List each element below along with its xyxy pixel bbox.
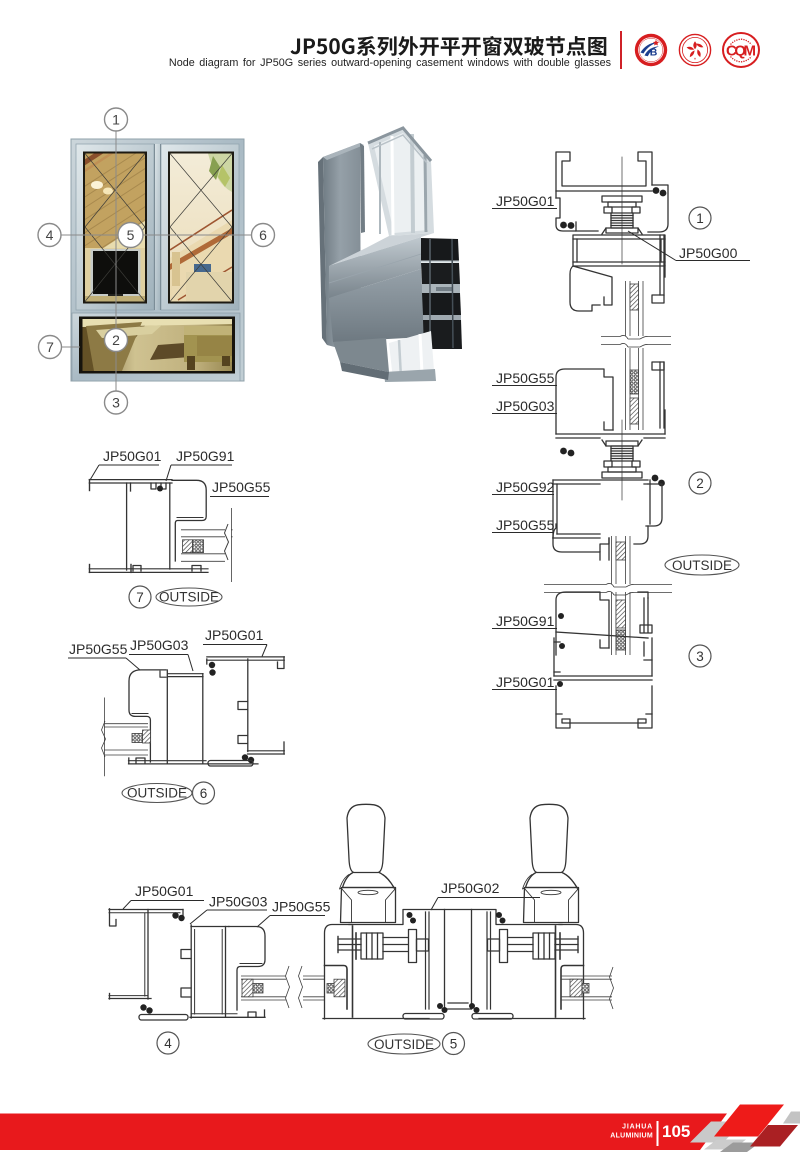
svg-text:JP50G01: JP50G01 (103, 448, 162, 464)
svg-text:4: 4 (164, 1036, 172, 1051)
svg-text:JP50G91: JP50G91 (496, 613, 555, 629)
svg-text:OUTSIDE: OUTSIDE (159, 590, 219, 605)
svg-text:JP50G01: JP50G01 (135, 883, 194, 899)
svg-text:OUTSIDE: OUTSIDE (374, 1037, 434, 1052)
svg-text:4: 4 (46, 227, 54, 243)
svg-text:JP50G55: JP50G55 (272, 899, 331, 915)
svg-text:2: 2 (112, 332, 120, 348)
svg-text:JP50G91: JP50G91 (176, 448, 235, 464)
svg-text:JP50G03: JP50G03 (209, 894, 268, 910)
svg-text:2: 2 (696, 476, 704, 491)
svg-text:JP50G55: JP50G55 (212, 479, 271, 495)
svg-text:7: 7 (136, 590, 144, 605)
svg-text:3: 3 (696, 649, 704, 664)
svg-text:1: 1 (112, 112, 120, 128)
svg-text:JP50G55: JP50G55 (69, 641, 128, 657)
svg-text:JP50G92: JP50G92 (496, 479, 555, 495)
svg-text:3: 3 (112, 395, 120, 411)
svg-text:JP50G55: JP50G55 (496, 370, 555, 386)
svg-text:ALUMINIUM: ALUMINIUM (610, 1133, 653, 1140)
svg-text:JIAHUA: JIAHUA (622, 1124, 653, 1131)
svg-text:JP50G01: JP50G01 (205, 627, 264, 643)
svg-text:JP50G01: JP50G01 (496, 674, 555, 690)
svg-text:JP50G03: JP50G03 (130, 637, 189, 653)
svg-text:JP50G55: JP50G55 (496, 517, 555, 533)
svg-text:1: 1 (696, 211, 704, 226)
svg-text:B: B (650, 47, 658, 59)
svg-text:JP50G01: JP50G01 (496, 193, 555, 209)
svg-text:OUTSIDE: OUTSIDE (672, 558, 732, 573)
svg-text:7: 7 (46, 339, 54, 355)
svg-text:JP50G03: JP50G03 (496, 398, 555, 414)
svg-text:5: 5 (127, 227, 135, 243)
svg-text:5: 5 (450, 1037, 458, 1052)
svg-text:JP50G00: JP50G00 (679, 245, 738, 261)
svg-text:105: 105 (662, 1122, 690, 1141)
svg-text:6: 6 (259, 227, 267, 243)
svg-text:JP50G02: JP50G02 (441, 880, 500, 896)
